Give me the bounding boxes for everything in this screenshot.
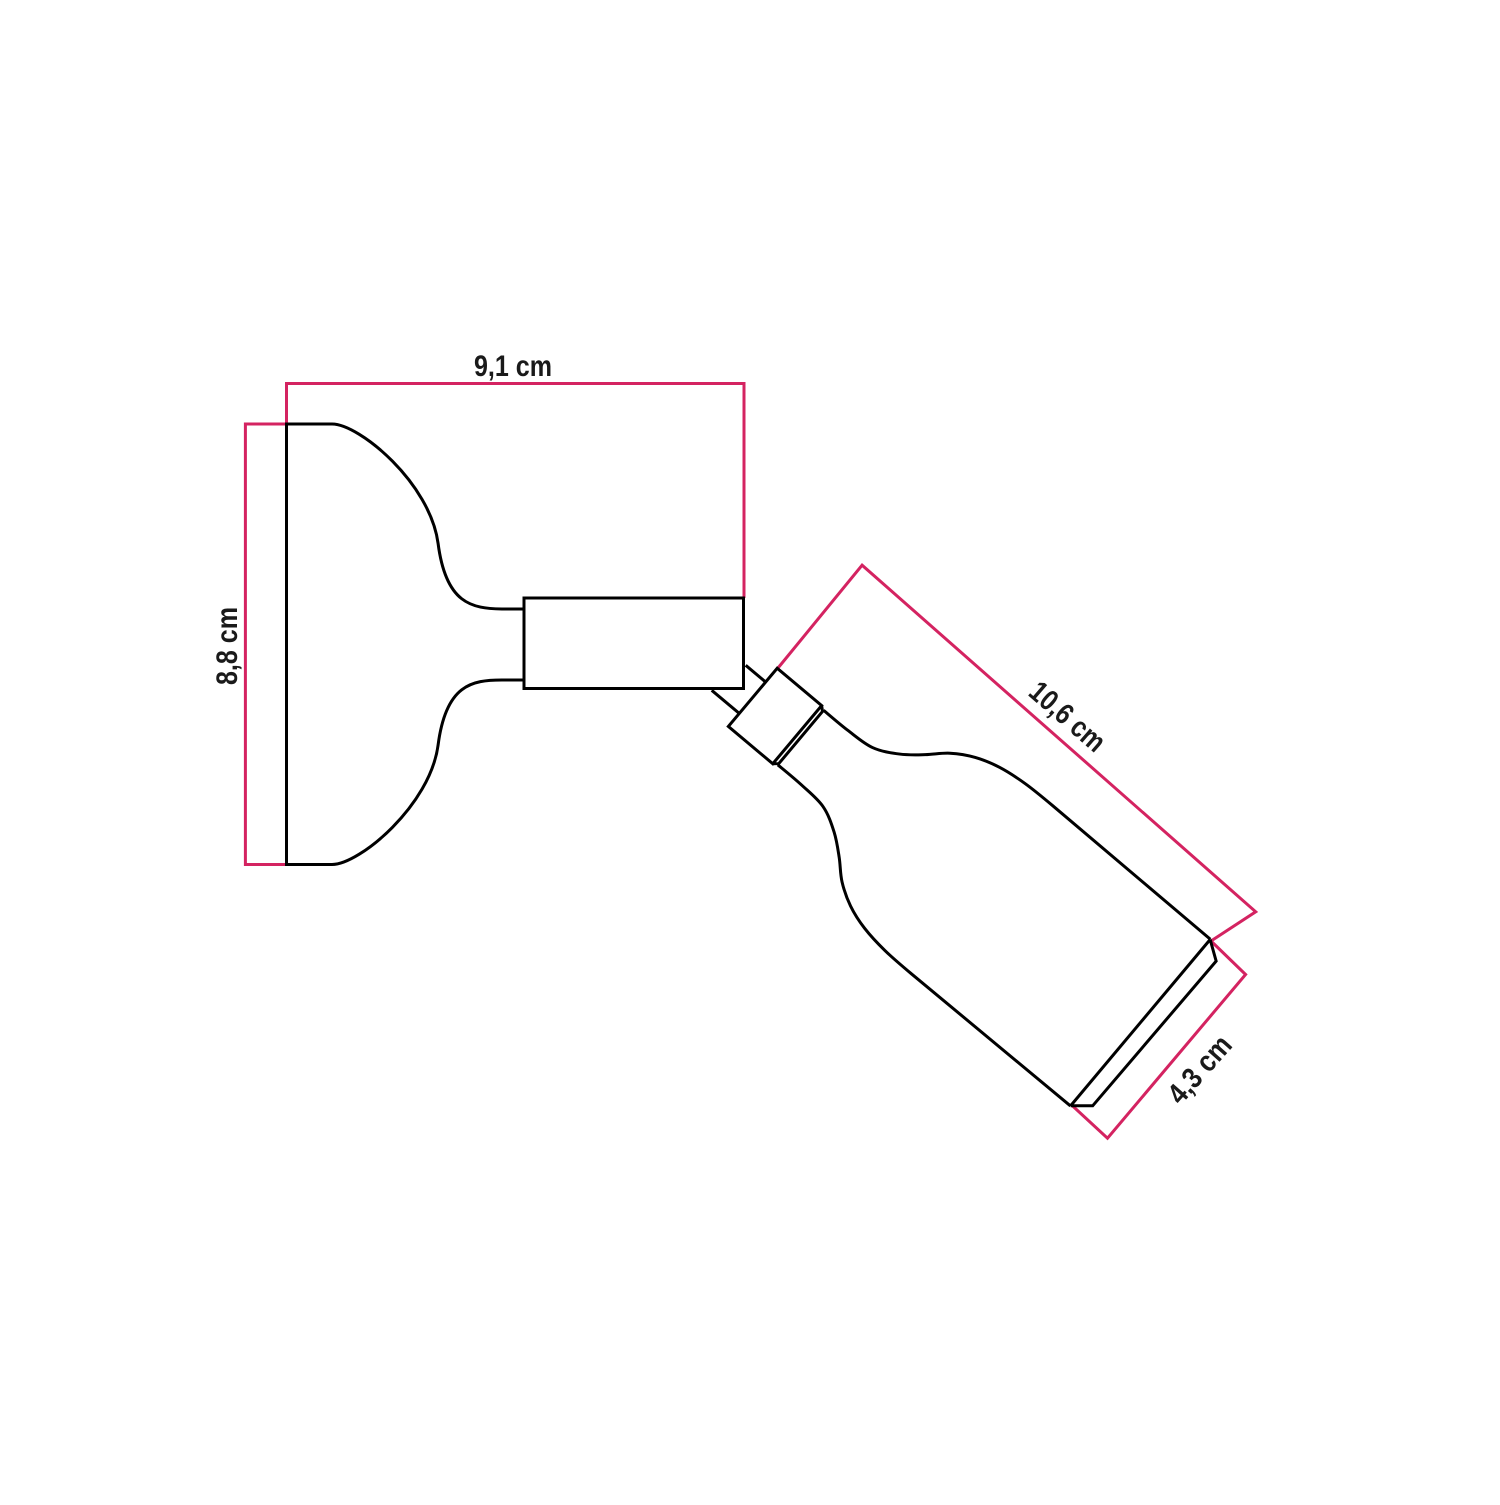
svg-text:9,1 cm: 9,1 cm xyxy=(474,350,552,383)
svg-text:8,8 cm: 8,8 cm xyxy=(211,607,244,685)
